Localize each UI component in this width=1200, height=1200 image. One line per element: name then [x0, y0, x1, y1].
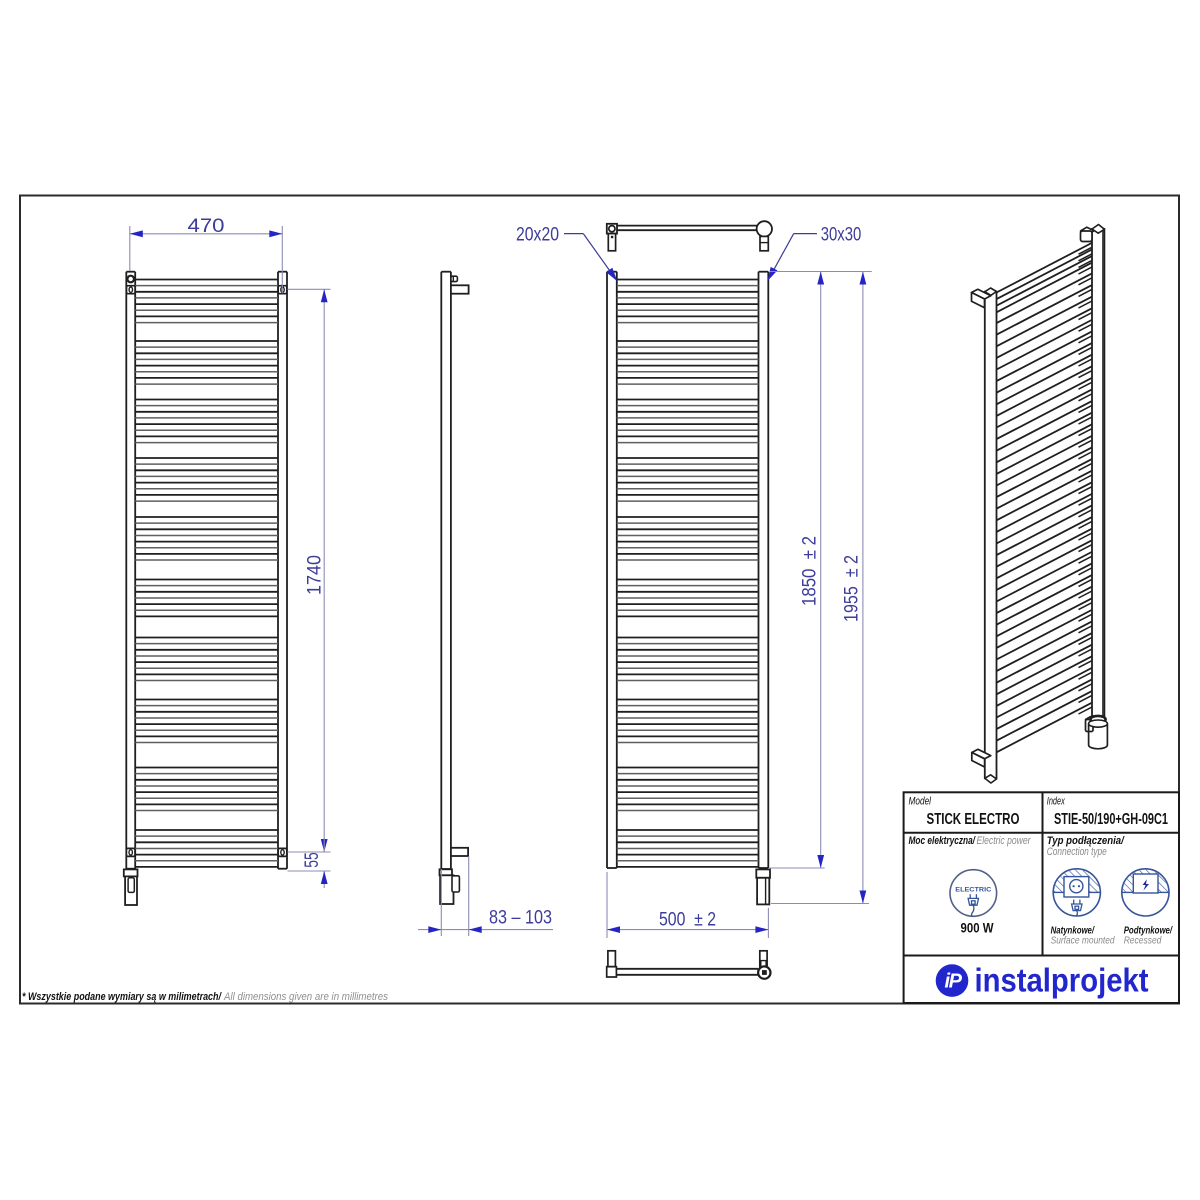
svg-text:900 W: 900 W — [961, 921, 994, 936]
svg-text:30x30: 30x30 — [821, 224, 862, 245]
svg-text:20x20: 20x20 — [516, 224, 559, 245]
svg-text:Connection type: Connection type — [1047, 846, 1107, 858]
svg-text:Electric power: Electric power — [977, 835, 1032, 847]
svg-text:500 ± 2: 500 ± 2 — [659, 910, 716, 931]
svg-text:All dimensions given are in mi: All dimensions given are in millimetres — [223, 991, 388, 1003]
svg-text:ELECTRIC: ELECTRIC — [955, 887, 991, 894]
svg-text:83 – 103: 83 – 103 — [489, 908, 552, 929]
svg-text:STICK ELECTRO: STICK ELECTRO — [927, 811, 1020, 828]
svg-text:1740: 1740 — [305, 555, 326, 595]
svg-text:Model: Model — [909, 796, 932, 808]
svg-text:Index: Index — [1047, 796, 1065, 808]
svg-text:* Wszystkie podane wymiary są: * Wszystkie podane wymiary są w milimetr… — [22, 991, 223, 1003]
svg-text:1955 ± 2: 1955 ± 2 — [842, 555, 863, 622]
svg-text:instalprojekt: instalprojekt — [975, 962, 1149, 999]
svg-text:iP: iP — [945, 971, 963, 993]
svg-text:Moc elektryczna/: Moc elektryczna/ — [909, 835, 977, 847]
svg-text:470: 470 — [188, 216, 225, 237]
svg-text:Surface mounted: Surface mounted — [1051, 935, 1116, 947]
svg-text:Recessed: Recessed — [1124, 935, 1163, 947]
svg-text:STIE-50/190+GH-09C1: STIE-50/190+GH-09C1 — [1054, 811, 1168, 828]
svg-text:55: 55 — [302, 852, 323, 868]
svg-text:1850 ± 2: 1850 ± 2 — [799, 536, 820, 606]
